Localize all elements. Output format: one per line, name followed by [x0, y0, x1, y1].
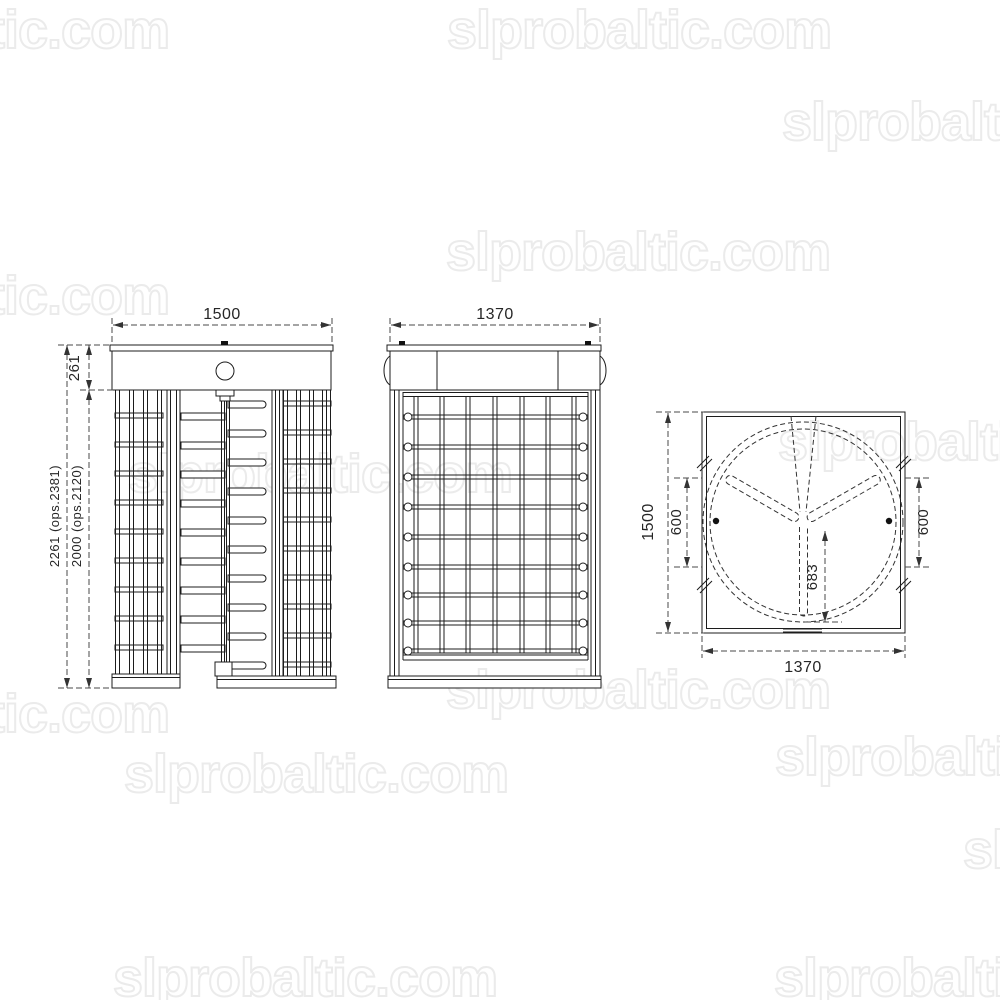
- front-rotor-arms: [181, 401, 266, 669]
- plan-bottom-joint: [783, 629, 822, 632]
- watermark-text: slprobaltic.com: [775, 727, 1000, 787]
- dim-front-width: 1500: [203, 306, 241, 323]
- dim-front-header-height: 261: [66, 355, 83, 382]
- front-base-plates: [112, 674, 336, 688]
- front-top-cap: [110, 345, 333, 351]
- watermark-text: slprobaltic.com: [124, 744, 508, 804]
- dim-front-inner-height: 2000 (ops.2120): [69, 465, 84, 567]
- watermark-text: slprobaltic.com: [447, 0, 831, 60]
- plan-hinge-dot-right: [886, 518, 892, 524]
- dim-plan-height: 1500: [640, 503, 657, 541]
- plan-rotor-arms-diagonal: [724, 474, 882, 523]
- watermark-text: slprobaltic.com: [113, 948, 497, 1000]
- dim-side-width: 1370: [476, 306, 514, 323]
- watermark-text: slprobaltic.com: [0, 266, 169, 326]
- dim-plan-width: 1370: [784, 659, 822, 676]
- plan-hinge-dot-left: [713, 518, 719, 524]
- side-top-cap: [387, 345, 601, 351]
- watermark-text: slprobaltic.com: [446, 660, 830, 720]
- dim-plan-rotor-offset: 683: [804, 564, 821, 591]
- dim-front-total-height: 2261 (ops.2381): [47, 465, 62, 567]
- front-view: [110, 341, 336, 688]
- side-view: [384, 341, 606, 688]
- side-posts: [390, 390, 600, 676]
- dim-plan-passage-right: 600: [915, 509, 932, 536]
- watermark-text: slprobaltic.com: [446, 222, 830, 282]
- side-cap-tick: [399, 341, 405, 345]
- front-right-grill: [283, 390, 331, 676]
- watermark-text: slprobaltic.com: [0, 684, 169, 744]
- front-right-post: [272, 390, 283, 676]
- watermark-text: slprobaltic.com: [774, 948, 1000, 1000]
- turnstile-technical-drawing: slprobaltic.com slprobaltic.com slprobal…: [0, 0, 1000, 1000]
- drawing-canvas: slprobaltic.com slprobaltic.com slprobal…: [0, 0, 1000, 1000]
- side-grill-panel: [403, 392, 588, 660]
- side-cap-tick: [585, 341, 591, 345]
- front-left-post: [167, 390, 180, 676]
- watermark-text: slprobaltic.com: [963, 820, 1000, 880]
- front-left-grill: [115, 390, 163, 674]
- watermark-text: slprobaltic.com: [778, 412, 1000, 472]
- watermark-text: slprobaltic.com: [0, 0, 169, 60]
- side-header-box: [390, 351, 600, 390]
- front-cap-tick: [221, 341, 228, 345]
- side-base-plate: [388, 676, 601, 688]
- front-header-box: [112, 351, 331, 390]
- dim-plan-passage-left: 600: [668, 509, 685, 536]
- watermark-text: slprobaltic.com: [782, 92, 1000, 152]
